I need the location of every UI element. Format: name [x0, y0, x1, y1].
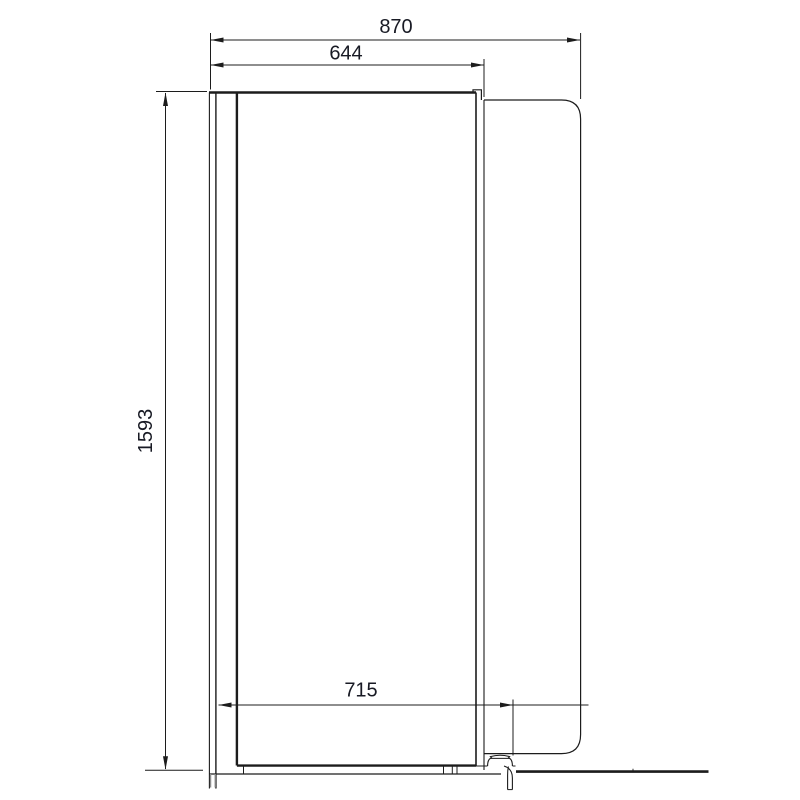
- dim-label-body-depth: 644: [329, 43, 362, 65]
- arrow-down-icon: [163, 756, 168, 770]
- technical-drawing-canvas: 870 644 1593: [0, 0, 800, 800]
- floor-line: [516, 769, 709, 772]
- arrow-right-icon: [500, 703, 513, 708]
- arrow-up-icon: [163, 93, 168, 107]
- dim-overall-depth: 870: [211, 16, 581, 43]
- dim-label-base-depth: 715: [344, 680, 377, 702]
- dim-label-overall-height: 1593: [135, 409, 157, 454]
- extension-lines-top: [211, 33, 581, 99]
- arrow-left-icon: [211, 38, 224, 43]
- foot-cap: [488, 755, 513, 766]
- dim-overall-height: 1593: [135, 92, 207, 771]
- arrow-right-icon: [471, 63, 484, 68]
- rear-foot: [488, 755, 513, 789]
- technical-drawing: 870 644 1593: [0, 0, 800, 800]
- dim-label-overall-depth: 870: [379, 16, 412, 38]
- door-panel-outline: [484, 100, 581, 754]
- arrow-left-icon: [219, 703, 232, 708]
- foot-bracket-inner: [508, 767, 509, 790]
- dim-body-depth: 644: [211, 43, 485, 68]
- dim-base-depth: 715: [219, 680, 589, 756]
- arrow-right-icon: [567, 38, 580, 43]
- arrow-left-icon: [211, 63, 224, 68]
